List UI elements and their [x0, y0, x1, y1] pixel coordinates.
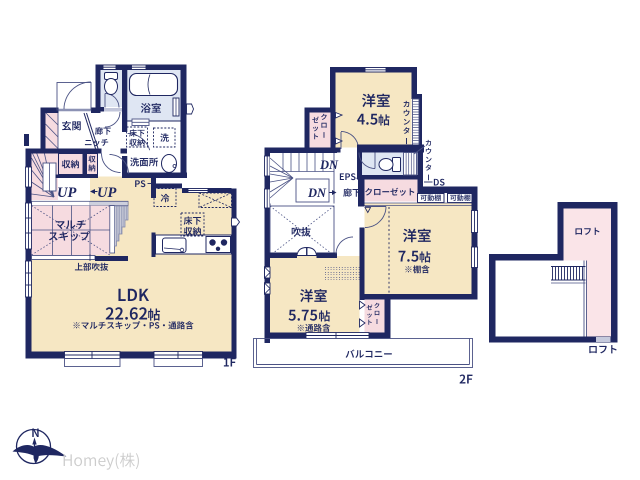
svg-text:DN: DN: [307, 186, 327, 200]
svg-text:UP: UP: [97, 185, 116, 201]
svg-text:DN: DN: [319, 158, 339, 172]
svg-text:UP: UP: [57, 185, 76, 201]
